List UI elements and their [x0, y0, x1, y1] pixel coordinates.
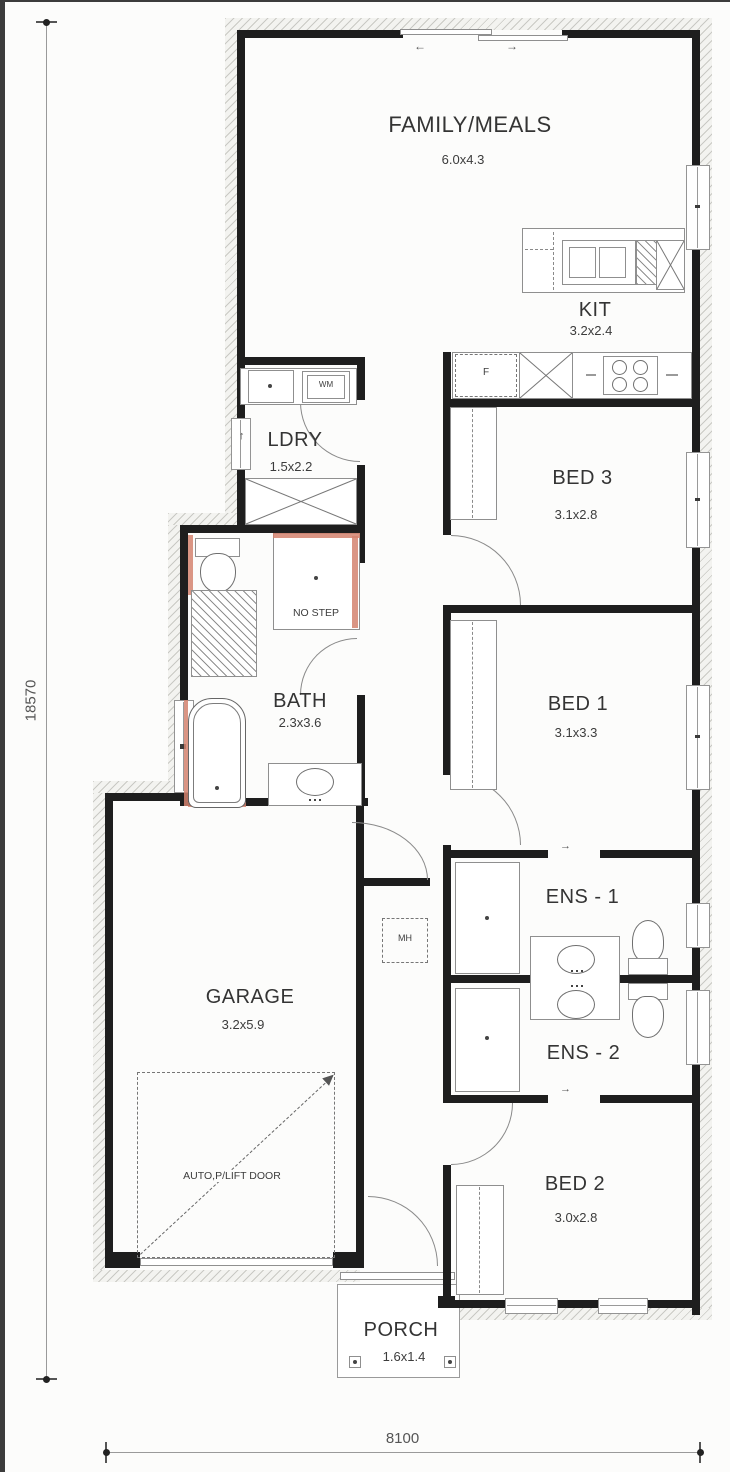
pantry-x-icon — [520, 353, 572, 398]
cooktop — [603, 356, 658, 395]
wall-bed1-ens1-right — [600, 850, 692, 858]
wet-wall-accent — [188, 535, 193, 595]
window-ens2-right — [686, 990, 710, 1065]
window-bed2-bottom-2 — [598, 1298, 648, 1314]
slider-arrow-left-icon: ← — [414, 40, 426, 52]
washing-machine-label: WM — [309, 380, 343, 389]
bath-shower-floor — [191, 590, 257, 677]
pantry — [519, 352, 573, 399]
garage-door-label: AUTO,P/LIFT DOOR — [163, 1170, 301, 1182]
bench-tick-right — [666, 374, 678, 376]
island-x-icon — [657, 241, 684, 289]
window-tick — [695, 735, 700, 738]
wall-step1 — [180, 525, 365, 533]
fridge-label: F — [471, 367, 501, 378]
bed3-robe-rail — [472, 409, 473, 518]
door-arc-bed2 — [451, 1103, 513, 1165]
wall-bed-vertical-3 — [443, 845, 451, 1103]
kitchen-island-end-unit — [656, 240, 685, 290]
room-dims-bed1: 3.1x3.3 — [526, 725, 626, 740]
room-dims-bed2: 3.0x2.8 — [526, 1210, 626, 1225]
screenshot-top-border — [0, 0, 730, 2]
cooktop-burner — [612, 360, 627, 375]
room-dims-bed3: 3.1x2.8 — [526, 507, 626, 522]
floor-plan: ← → → → WM ↑ F NO STE — [0, 0, 730, 1472]
bed2-robe-rail — [479, 1187, 480, 1293]
bath-basin-taps — [309, 799, 311, 801]
exterior-wall-hatch-bottom-right — [438, 1308, 712, 1320]
ens1-toilet-tank — [628, 958, 668, 975]
room-label-bath: BATH — [250, 690, 350, 713]
linen-x-icon — [246, 479, 356, 524]
room-label-ens2: ENS - 2 — [530, 1042, 637, 1065]
wall-bottom-2 — [558, 1300, 598, 1308]
ens2-basin — [557, 990, 595, 1019]
window-tick — [695, 205, 700, 208]
wall-right-2 — [692, 250, 700, 452]
dim-overall-width: 8100 — [375, 1430, 430, 1447]
ens1-basin — [557, 945, 595, 974]
window-tick — [695, 498, 700, 501]
room-label-bed1: BED 1 — [528, 693, 628, 716]
window-ens1-right-glassline — [697, 905, 698, 946]
room-dims-family: 6.0x4.3 — [408, 152, 518, 167]
dim-marker — [103, 1449, 110, 1456]
cooktop-burner — [633, 377, 648, 392]
window-ldry-left-glassline — [240, 420, 241, 468]
shower-drain — [314, 576, 318, 580]
dim-marker — [43, 1376, 50, 1383]
linen-cupboard — [245, 478, 357, 525]
dim-line-horizontal — [106, 1452, 700, 1453]
wall-right-3 — [692, 548, 700, 685]
exterior-wall-hatch-step2 — [93, 781, 180, 793]
ldry-level-arrow-icon: ↑ — [239, 431, 245, 442]
exterior-wall-hatch-step1 — [168, 513, 237, 525]
ens2-shower-drain — [485, 1036, 489, 1040]
kitchen-sink-bowl-1 — [569, 247, 596, 278]
door-arc-bed3 — [451, 535, 521, 605]
ens1-toilet-bowl — [632, 920, 664, 962]
room-dims-ldry: 1.5x2.2 — [251, 459, 331, 474]
door-arc-hall — [352, 822, 428, 880]
room-dims-kit: 3.2x2.4 — [551, 323, 631, 338]
wall-ldry-right-lower — [357, 465, 365, 533]
wall-right-4 — [692, 790, 700, 903]
room-label-kit: KIT — [560, 299, 630, 322]
wall-garage-bottom-stub-left — [105, 1252, 140, 1268]
bathtub-drain — [215, 786, 219, 790]
room-dims-garage: 3.2x5.9 — [193, 1017, 293, 1032]
door-arc-bath — [300, 638, 357, 695]
wall-right-5 — [692, 948, 700, 990]
room-label-ldry: LDRY — [255, 429, 335, 452]
room-label-porch: PORCH — [351, 1319, 451, 1342]
room-label-ens1: ENS - 1 — [530, 886, 635, 909]
cooktop-burner — [612, 377, 627, 392]
kitchen-drainer — [636, 240, 658, 285]
ens2-basin-taps — [571, 985, 573, 987]
ens2-shower — [455, 988, 520, 1092]
room-dims-porch: 1.6x1.4 — [354, 1349, 454, 1364]
window-ens1-right — [686, 903, 710, 948]
wall-bed-vertical-4 — [443, 1165, 451, 1308]
bath-basin — [296, 768, 334, 796]
porch-step-edge — [340, 1272, 455, 1280]
dim-marker — [697, 1449, 704, 1456]
wall-bottom-3 — [648, 1300, 700, 1308]
room-label-family: FAMILY/MEALS — [360, 112, 580, 138]
wall-bed3-bed1 — [443, 605, 700, 613]
screenshot-left-border — [0, 0, 5, 1472]
slider-arrow-right-icon: → — [506, 40, 518, 52]
wall-ldry-top — [237, 357, 365, 365]
bed1-robe — [450, 620, 497, 790]
ens1-basin-taps — [571, 970, 573, 972]
garage-door-panel — [140, 1258, 333, 1266]
cooktop-burner — [633, 360, 648, 375]
ldry-tub-drain — [268, 384, 272, 388]
dim-marker — [43, 19, 50, 26]
window-ldry-left — [231, 418, 251, 470]
wall-bed1-ens1-left — [443, 850, 548, 858]
ens1-shower-drain — [485, 916, 489, 920]
exterior-wall-hatch-garage-bottom — [93, 1270, 360, 1282]
wet-wall-accent — [273, 533, 360, 538]
room-label-bed2: BED 2 — [525, 1173, 625, 1196]
wall-garage-left — [105, 793, 113, 1268]
wall-top-left — [237, 30, 403, 38]
wall-right-6 — [692, 1065, 700, 1315]
wall-top-right — [562, 30, 700, 38]
ens1-slider-arrow-icon: → — [560, 841, 571, 852]
bench-tick-left — [586, 374, 596, 376]
bed2-robe — [456, 1185, 504, 1295]
sliding-door-panel-2 — [478, 35, 568, 41]
window-bed2-bottom-1-glassline — [507, 1305, 556, 1306]
manhole-label: MH — [384, 933, 426, 943]
no-step-label: NO STEP — [276, 607, 356, 619]
dim-overall-depth: 18570 — [23, 676, 40, 726]
wall-left-mid — [180, 525, 188, 700]
wall-ldry-right-upper — [357, 357, 365, 400]
ens2-toilet-bowl — [632, 996, 664, 1038]
wall-ens2-bed2-right — [600, 1095, 692, 1103]
window-bed2-bottom-1 — [505, 1298, 558, 1314]
door-arc-front — [368, 1196, 438, 1266]
window-bed2-bottom-2-glassline — [600, 1305, 646, 1306]
room-dims-bath: 2.3x3.6 — [250, 715, 350, 730]
bath-toilet-bowl — [200, 553, 236, 593]
kitchen-sink-bowl-2 — [599, 247, 626, 278]
bed1-robe-rail — [472, 622, 473, 788]
kitchen-island-dash-h — [525, 249, 553, 250]
ens2-slider-arrow-icon: → — [560, 1084, 571, 1095]
window-ens2-right-glassline — [697, 992, 698, 1063]
wall-step2 — [105, 793, 188, 801]
room-label-garage: GARAGE — [185, 986, 315, 1009]
wall-bottom-1 — [455, 1300, 505, 1308]
dim-line-vertical — [46, 22, 47, 1380]
wall-kit-bed3 — [443, 399, 700, 407]
wall-right-1 — [692, 30, 700, 165]
kitchen-island-dash-v — [553, 232, 554, 290]
wall-ens2-bed2-left — [443, 1095, 548, 1103]
wall-left-upper-2 — [237, 470, 245, 533]
bed3-robe — [450, 407, 497, 520]
exterior-wall-hatch-garage-left — [93, 793, 105, 1280]
room-label-bed3: BED 3 — [530, 467, 635, 490]
